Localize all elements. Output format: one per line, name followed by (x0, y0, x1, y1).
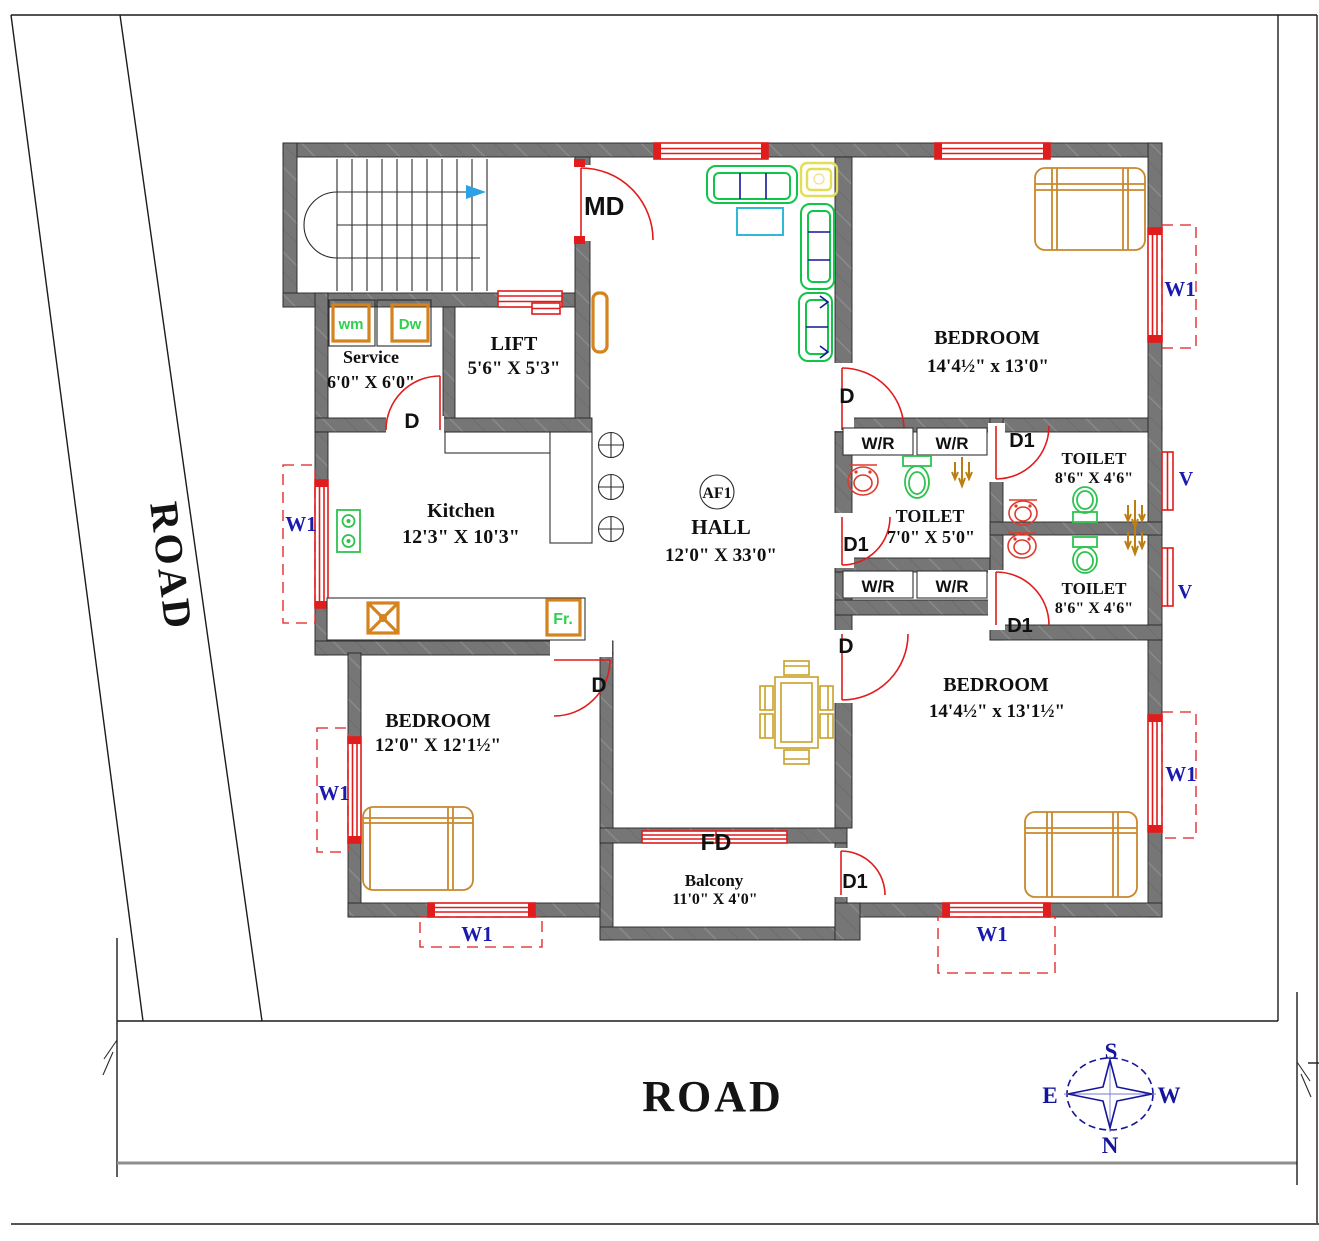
room-name-toilet-br: TOILET (1062, 579, 1128, 598)
sofa-right-upper (801, 204, 834, 289)
room-dims-balcony: 11'0" X 4'0" (672, 891, 757, 908)
wc (1073, 537, 1097, 573)
room-name-bedroom-tr: BEDROOM (934, 327, 1040, 349)
compass-west: W (1158, 1083, 1181, 1108)
window-label-w1: W1 (1164, 277, 1196, 301)
door-label-d1: D1 (1009, 430, 1035, 452)
room-name-lift: LIFT (491, 333, 538, 355)
window-bedroom-tr-top (935, 143, 1050, 159)
room-dims-toilet-tr: 8'6" X 4'6" (1055, 470, 1133, 487)
room-name-bedroom-bl: BEDROOM (385, 710, 491, 732)
af1-marker: AF1 (700, 475, 734, 509)
compass-south: S (1105, 1039, 1118, 1064)
sofa-right-lower (799, 293, 832, 361)
door-label-d: D (404, 410, 419, 433)
door-label-d: D (839, 385, 854, 408)
door-label-d: D (838, 635, 853, 658)
window-balcony-fd: FD (642, 829, 787, 855)
window-toilet-br-vent: V (1162, 548, 1193, 606)
center-table (737, 208, 783, 235)
room-dims-bedroom-tr: 14'4½" x 13'0" (927, 356, 1049, 377)
vent-label-v: V (1179, 468, 1194, 490)
window-toilet-tr-vent: V (1162, 452, 1194, 510)
wardrobe-label: W/R (861, 577, 894, 596)
room-name-balcony: Balcony (685, 871, 744, 890)
window-kitchen-w1: W1 (283, 465, 328, 623)
window-bedroom-bl-w1-left: W1 (317, 728, 361, 852)
room-name-toilet-tr: TOILET (1062, 449, 1128, 468)
af1-label: AF1 (702, 485, 731, 502)
window-label-w1: W1 (976, 922, 1008, 946)
stair-direction-arrow (466, 185, 486, 199)
wc (903, 456, 931, 498)
door-label-d1: D1 (842, 871, 868, 893)
room-dims-lift: 5'6" X 5'3" (468, 358, 561, 379)
door-label-d1: D1 (843, 534, 869, 556)
wardrobe-label: W/R (935, 434, 968, 453)
room-name-hall: HALL (691, 515, 751, 539)
lift-shutter (593, 293, 607, 352)
wash-basin (848, 465, 878, 495)
door-label-md: MD (584, 191, 624, 221)
window-label-w1: W1 (318, 781, 350, 805)
floor-plan-canvas: ROAD ROAD S N E W (0, 0, 1319, 1241)
toilet-tr-fixtures (1009, 487, 1145, 527)
stove (337, 510, 360, 552)
break-mark-right (1297, 1062, 1311, 1097)
window-bedroom-br-w1-right: W1 (1148, 712, 1197, 838)
window-label-w1: W1 (461, 922, 493, 946)
door-label-d: D (591, 674, 606, 697)
break-mark-left (103, 1040, 117, 1075)
room-dims-bedroom-br: 14'4½" x 13'1½" (929, 701, 1065, 722)
sofa-three-seater (707, 166, 797, 203)
columns (599, 433, 624, 542)
dishwasher-label: Dw (399, 316, 422, 333)
wc (1073, 487, 1097, 522)
window-hall-top (654, 143, 768, 159)
room-dims-toilet-br: 8'6" X 4'6" (1055, 600, 1133, 617)
room-dims-bedroom-bl: 12'0" X 12'1½" (375, 735, 501, 756)
room-dims-service: 6'0" X 6'0" (327, 372, 415, 392)
column-marker (599, 475, 624, 500)
wardrobe-label: W/R (935, 577, 968, 596)
tv-unit (801, 163, 837, 196)
dining-set (760, 661, 833, 764)
window-lift-door (498, 291, 562, 314)
wash-basin (1008, 533, 1036, 558)
toilet-mid-fixtures (848, 456, 972, 498)
compass-north: N (1102, 1133, 1119, 1158)
window-bedroom-bl-w1-bottom: W1 (420, 903, 542, 947)
shower (1125, 500, 1145, 527)
room-name-kitchen: Kitchen (427, 500, 495, 522)
bed-bedroom-br (1025, 812, 1137, 897)
road-label-bottom: ROAD (642, 1072, 784, 1121)
wash-basin (1009, 500, 1037, 525)
bed-bedroom-bl (363, 807, 473, 890)
compass-rose: S N E W (1042, 1039, 1180, 1158)
room-dims-hall: 12'0" X 33'0" (665, 545, 777, 566)
room-name-bedroom-br: BEDROOM (943, 674, 1049, 696)
room-dims-toilet-mid: 7'0" X 5'0" (887, 527, 975, 547)
bed-bedroom-tr (1035, 168, 1145, 250)
window-label-w1: W1 (285, 512, 317, 536)
vent-label-v: V (1178, 581, 1193, 603)
door-label-fd: FD (701, 829, 732, 855)
shower (952, 457, 972, 486)
fridge-label: Fr. (553, 611, 573, 628)
window-bedroom-tr-w1: W1 (1148, 225, 1196, 348)
compass-east: E (1042, 1083, 1057, 1108)
staircase (304, 159, 487, 291)
kitchen-fixtures: Fr. wm Dw (327, 293, 607, 640)
road-label-left: ROAD (141, 499, 201, 633)
room-name-service: Service (343, 347, 399, 367)
column-marker (599, 433, 624, 458)
column-marker (599, 517, 624, 542)
room-dims-kitchen: 12'3" X 10'3" (402, 526, 520, 548)
room-name-toilet-mid: TOILET (896, 506, 965, 526)
washing-machine-label: wm (337, 316, 363, 333)
door-label-d1: D1 (1007, 615, 1033, 637)
window-label-w1: W1 (1165, 762, 1197, 786)
wardrobe-label: W/R (861, 434, 894, 453)
window-bedroom-br-w1-bottom: W1 (938, 903, 1055, 973)
hall-furniture (707, 163, 837, 764)
